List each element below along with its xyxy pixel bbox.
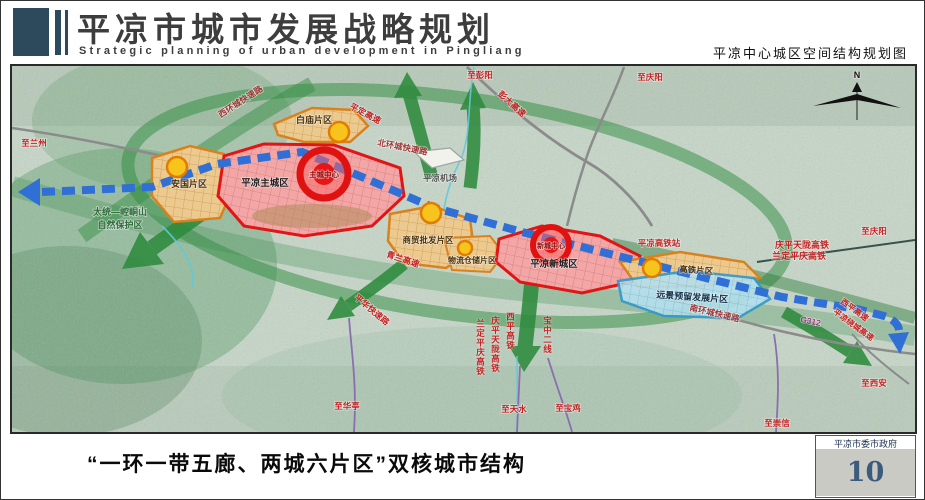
label-to-tianshui: 至天水 xyxy=(501,404,527,414)
label-landing-hsr-vertical: 兰定平庆高铁 xyxy=(476,319,485,376)
document-subtitle-en: Strategic planning of urban development … xyxy=(79,45,525,57)
label-zone-wholesale: 商贸批发片区 xyxy=(402,235,454,245)
logo-bar-thin xyxy=(65,10,68,55)
planning-document-page: 平凉市城市发展战略规划 Strategic planning of urban … xyxy=(0,0,925,500)
map-canvas: N 至兰州 至彭阳 至庆阳 至庆阳 至西安 至崇信 至华亭 至天水 至宝鸡 彭大… xyxy=(12,66,915,432)
label-core-new: 新城中心 xyxy=(537,241,565,250)
label-zone-baimiao: 白庙片区 xyxy=(296,114,332,125)
label-to-qingyang-top: 至庆阳 xyxy=(637,72,663,82)
label-airport: 平凉机场 xyxy=(423,173,458,183)
page-number: 10 xyxy=(816,449,915,496)
subcenter-anguo xyxy=(167,157,187,177)
label-zone-logistics: 物流仓储片区 xyxy=(448,255,496,265)
label-baozhong-line2: 宝中二线 xyxy=(543,316,552,354)
label-zone-main-city: 平凉主城区 xyxy=(241,177,289,189)
label-nature-reserve-1: 太统—崆峒山 xyxy=(92,206,147,217)
label-qingping-hsr-vertical: 庆平天陇高铁 xyxy=(491,316,500,373)
page-number-box: 平凉市委市政府 10 xyxy=(815,435,916,498)
label-to-xian: 至西安 xyxy=(861,378,887,388)
header: 平凉市城市发展战略规划 Strategic planning of urban … xyxy=(1,1,924,64)
label-to-pengyang: 至彭阳 xyxy=(467,70,493,80)
subcenter-baimiao xyxy=(329,122,349,142)
label-hsr-station: 平凉高铁站 xyxy=(638,238,681,248)
label-landing-pingqing-hsr: 兰定平庆高铁 xyxy=(772,250,826,261)
north-label: N xyxy=(854,70,861,80)
subcenter-logistics xyxy=(458,241,472,255)
logo-bar-thick xyxy=(55,10,61,55)
subcenter-wholesale xyxy=(421,203,441,223)
map-title: 平凉中心城区空间结构规划图 xyxy=(713,43,908,62)
label-zone-new-city: 平凉新城区 xyxy=(530,258,578,270)
label-to-baoji: 至宝鸡 xyxy=(555,403,581,413)
label-core-main: 主城中心 xyxy=(309,169,339,179)
label-zone-anguo: 安国片区 xyxy=(171,178,207,189)
logo-square xyxy=(13,8,49,56)
label-nature-reserve-2: 自然保护区 xyxy=(97,219,142,230)
label-xiping-hsr: 西平高铁 xyxy=(506,312,515,350)
structure-caption: “一环一带五廊、两城六片区”双核城市结构 xyxy=(87,448,526,478)
planning-map: N 至兰州 至彭阳 至庆阳 至庆阳 至西安 至崇信 至华亭 至天水 至宝鸡 彭大… xyxy=(10,64,917,434)
label-to-chongxin: 至崇信 xyxy=(764,418,790,428)
label-to-lanzhou: 至兰州 xyxy=(21,138,47,148)
label-to-huating: 至华亭 xyxy=(334,401,360,411)
agency-name: 平凉市委市政府 xyxy=(816,436,915,449)
document-title: 平凉市城市发展战略规划 xyxy=(77,3,495,51)
label-to-qingyang-right: 至庆阳 xyxy=(861,226,887,236)
subcenter-hsr xyxy=(643,259,661,277)
label-qingping-tianlong-hsr: 庆平天陇高铁 xyxy=(774,239,829,250)
